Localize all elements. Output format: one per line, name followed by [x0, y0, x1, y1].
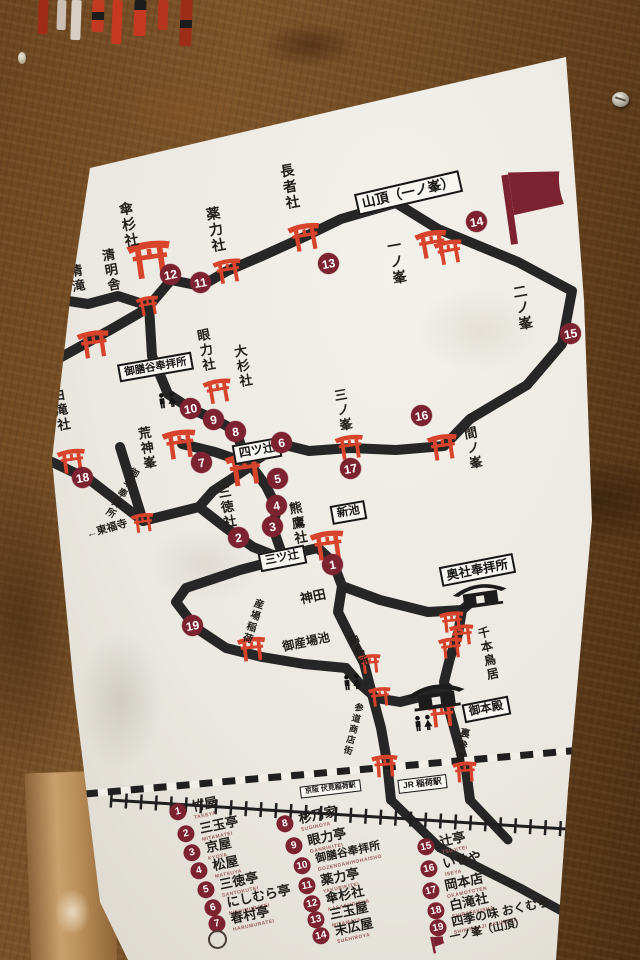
summit-flag-icon — [501, 165, 568, 244]
legend-number: 1 — [168, 802, 188, 822]
screw — [612, 92, 629, 107]
pole — [91, 0, 104, 32]
metal-pin — [18, 52, 26, 64]
legend-number: 17 — [421, 881, 441, 901]
torii-gate-icon — [202, 377, 234, 405]
legend-number: 4 — [189, 861, 209, 881]
legend-number: 10 — [292, 856, 312, 876]
pole — [133, 0, 146, 36]
pole — [70, 0, 81, 40]
pole — [157, 0, 168, 30]
legend-number: 5 — [196, 880, 216, 900]
photo-of-trail-map-sign: 山頂（一ノ峯） 御膳谷奉拝所 四ツ辻 新池 三ツ辻 奥社奉拝所 御本殿 京阪 伏… — [0, 0, 640, 960]
sign-board: 山頂（一ノ峯） 御膳谷奉拝所 四ツ辻 新池 三ツ辻 奥社奉拝所 御本殿 京阪 伏… — [0, 0, 640, 960]
legend-number: 8 — [275, 814, 295, 834]
pole — [56, 0, 66, 30]
pole — [37, 0, 48, 34]
legend-number: 14 — [311, 926, 331, 946]
legend-number: 16 — [419, 859, 439, 879]
legend-number: 11 — [297, 876, 317, 896]
legend-number: 3 — [182, 843, 202, 863]
pole — [111, 0, 123, 44]
legend-number: 15 — [416, 837, 436, 857]
legend-flag-icon — [429, 934, 446, 954]
legend-number: 9 — [284, 836, 304, 856]
shrine-building-icon — [406, 681, 467, 713]
toilet-icon — [415, 714, 433, 731]
legend-number: 2 — [176, 824, 196, 844]
pole — [179, 0, 193, 46]
